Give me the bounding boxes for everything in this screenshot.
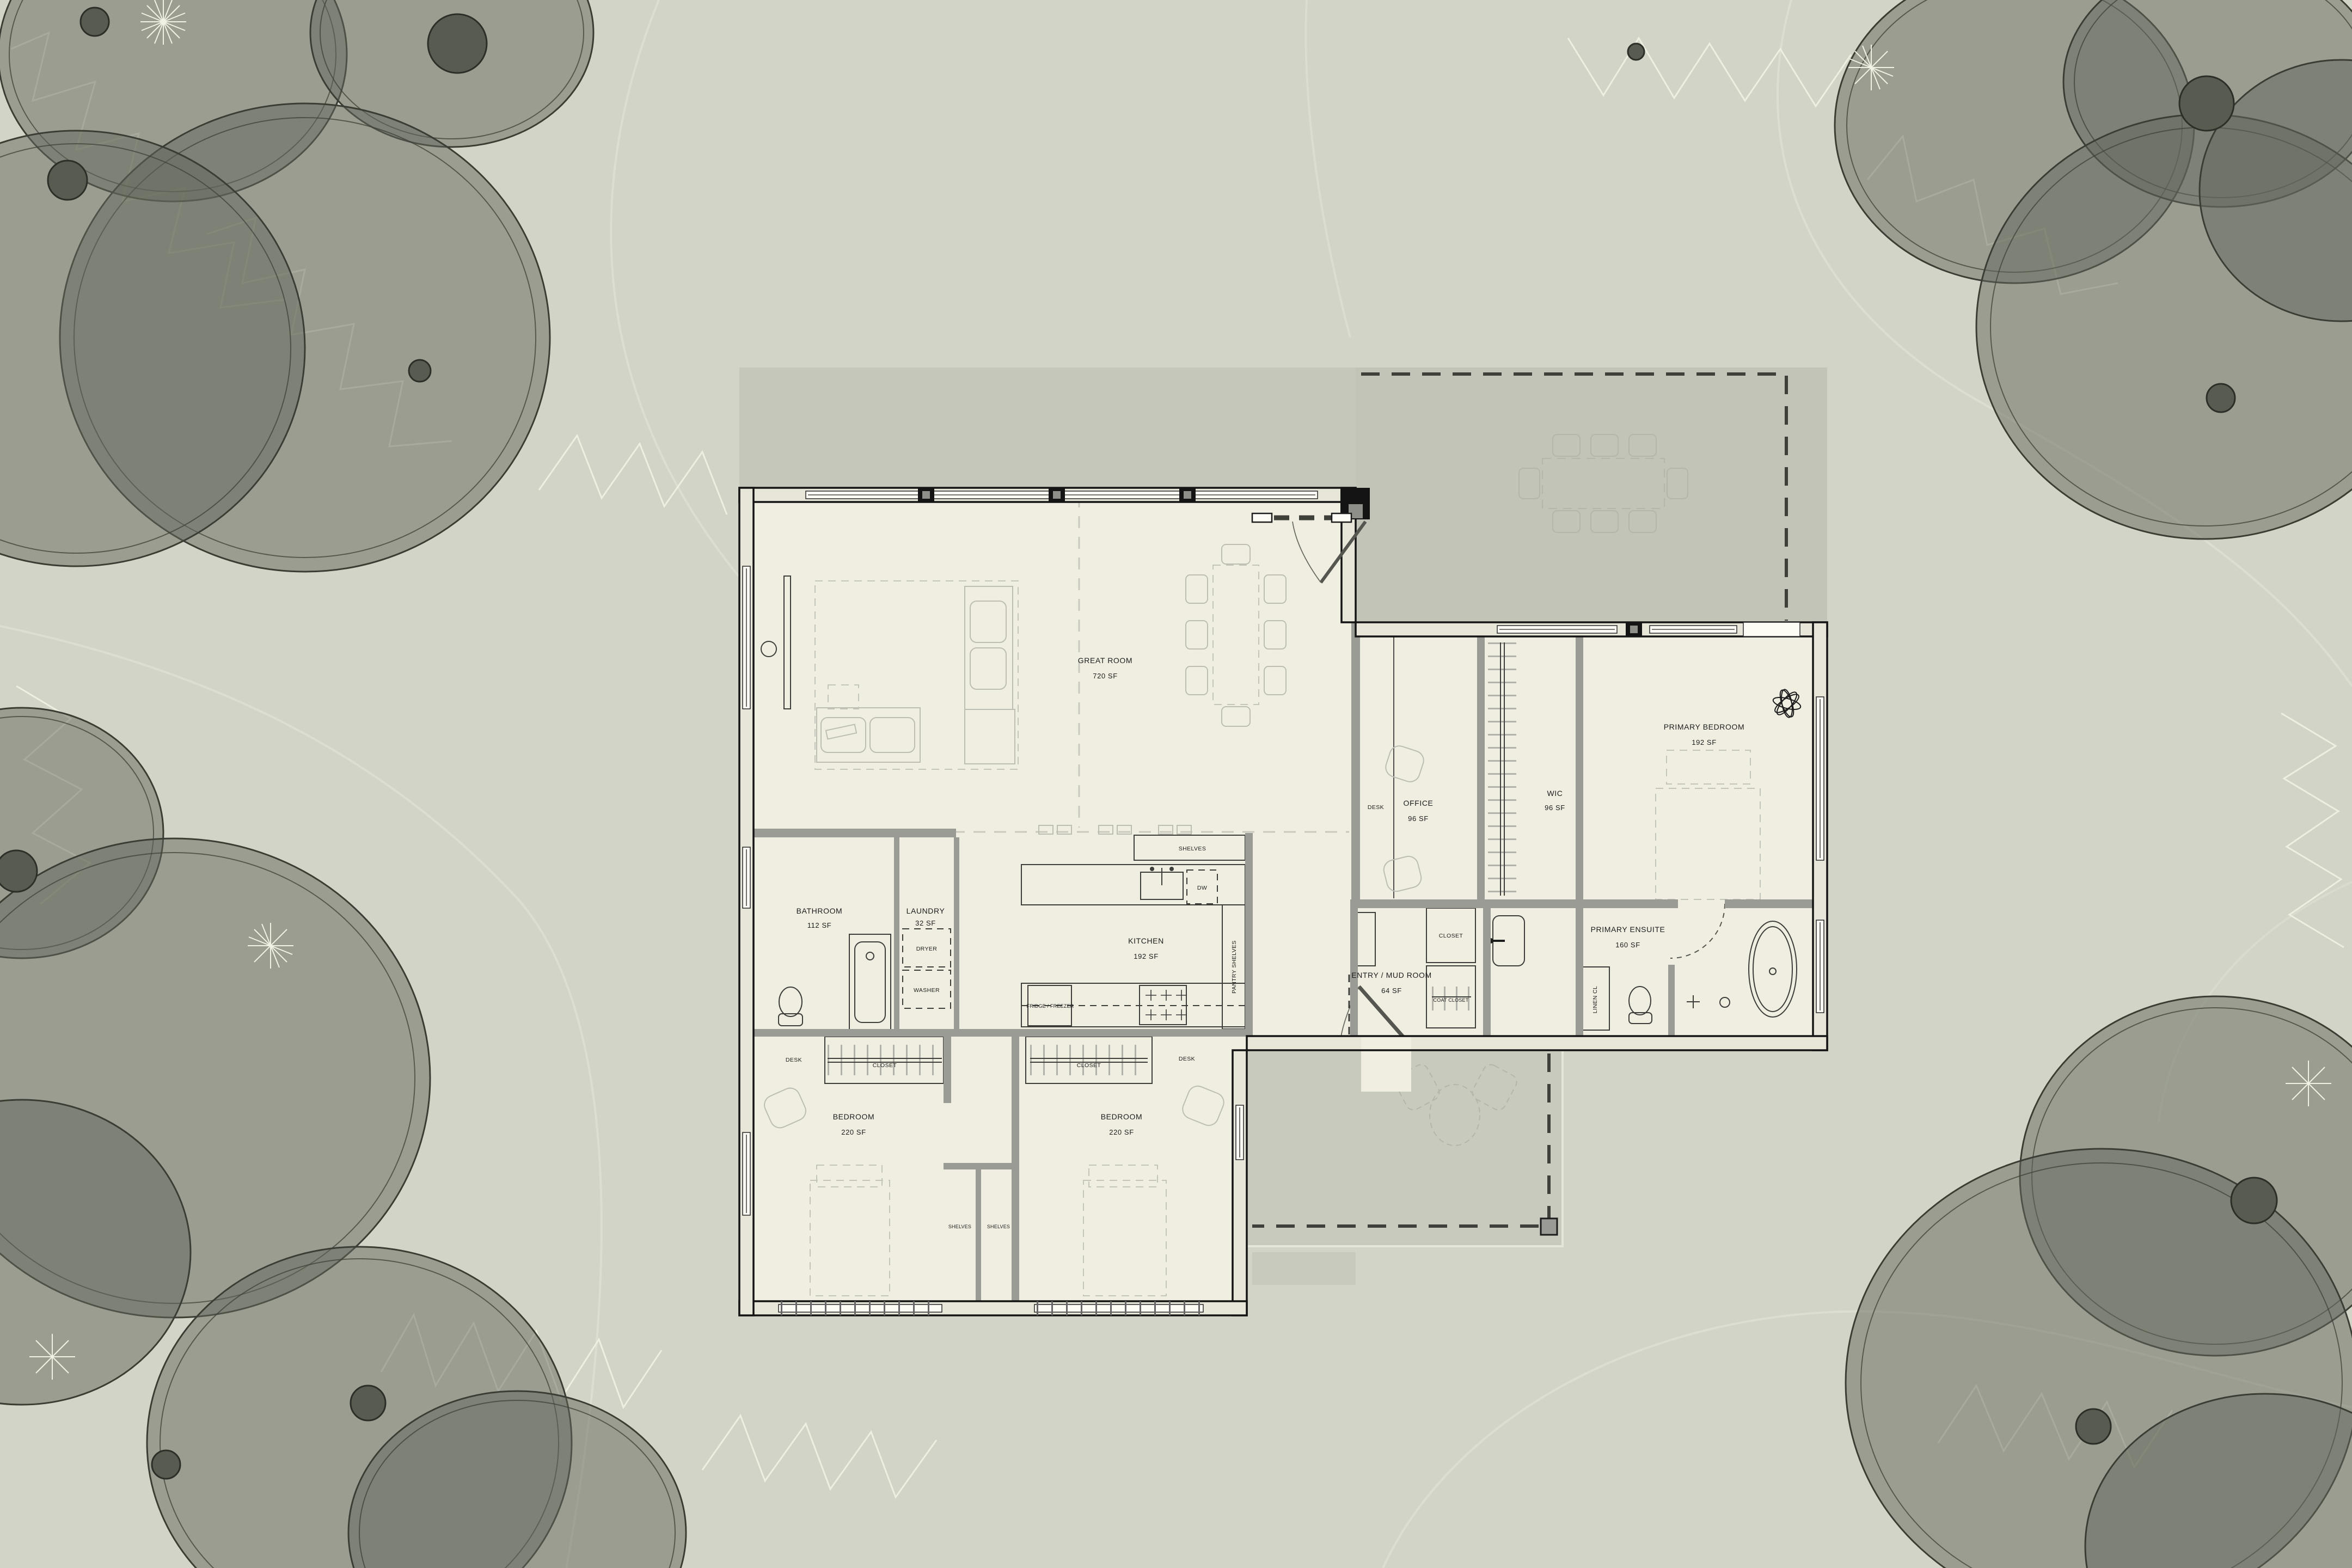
label-primary-ensuite-area: 160 SF (1615, 941, 1640, 949)
patio-post (1541, 1218, 1557, 1235)
label-closet-bedroom1: CLOSET (873, 1062, 897, 1069)
label-primary-bedroom-area: 192 SF (1692, 738, 1717, 746)
tree-trunk (2179, 76, 2234, 131)
tree-trunk (81, 8, 109, 36)
label-shelves-right: SHELVES (987, 1224, 1010, 1229)
label-shelves-left: SHELVES (948, 1224, 971, 1229)
label-office-area: 96 SF (1408, 814, 1429, 823)
label-bathroom-area: 112 SF (807, 921, 832, 929)
label-desk-bedroom1: DESK (786, 1057, 802, 1063)
label-wic: WIC (1547, 789, 1563, 798)
tree-trunk (351, 1386, 385, 1420)
site-plan: GREAT ROOM 720 SF KITCHEN 192 SF BATHROO… (0, 0, 2352, 1568)
label-dishwasher: DW (1197, 885, 1207, 891)
tree-trunk (2207, 384, 2235, 412)
label-laundry: LAUNDRY (906, 906, 945, 915)
label-entry-area: 64 SF (1381, 987, 1402, 995)
label-entry: ENTRY / MUD ROOM (1351, 971, 1432, 979)
label-coat-closet: COAT CLOSET (1434, 997, 1469, 1003)
tree-trunk (2231, 1178, 2277, 1223)
label-island-shelves: SHELVES (1179, 846, 1206, 852)
upper-patio (1356, 367, 1827, 623)
label-bedroom-2: BEDROOM (1101, 1112, 1143, 1121)
tree-trunk (428, 14, 487, 73)
label-bedroom-2-area: 220 SF (1109, 1128, 1134, 1136)
label-bedroom-1-area: 220 SF (841, 1128, 866, 1136)
tree-trunk (1628, 44, 1644, 60)
label-office: OFFICE (1404, 799, 1434, 807)
tree-trunk (152, 1450, 180, 1479)
label-dryer: DRYER (916, 946, 938, 952)
label-bathroom: BATHROOM (797, 906, 843, 915)
label-washer: WASHER (914, 987, 940, 994)
label-kitchen-area: 192 SF (1134, 952, 1159, 960)
tree-trunk (0, 850, 37, 892)
label-entry-closet: CLOSET (1439, 933, 1463, 939)
tree-trunk (2076, 1409, 2111, 1444)
label-linen-closet: LINEN CL (1592, 986, 1598, 1013)
label-kitchen: KITCHEN (1128, 936, 1164, 945)
label-laundry-area: 32 SF (915, 919, 936, 927)
label-closet-bedroom2: CLOSET (1077, 1062, 1101, 1069)
label-desk-bedroom2: DESK (1179, 1056, 1195, 1062)
tree-trunk (409, 360, 431, 382)
label-pantry-shelves: PANTRY SHELVES (1231, 940, 1238, 994)
tree-trunk (48, 161, 87, 200)
walkway (1252, 1252, 1356, 1285)
label-bedroom-1: BEDROOM (833, 1112, 875, 1121)
label-fridge: FRIDGE / FREEZER (1027, 1003, 1074, 1009)
label-primary-ensuite: PRIMARY ENSUITE (1591, 925, 1665, 934)
label-great-room-area: 720 SF (1093, 672, 1118, 680)
label-wic-area: 96 SF (1545, 804, 1565, 812)
site-plan-drawing: GREAT ROOM 720 SF KITCHEN 192 SF BATHROO… (0, 0, 2352, 1568)
label-primary-bedroom: PRIMARY BEDROOM (1664, 722, 1745, 731)
label-office-desk: DESK (1368, 804, 1384, 811)
rear-deck (739, 367, 1356, 492)
label-great-room: GREAT ROOM (1078, 656, 1132, 665)
entry-threshold (1361, 1050, 1411, 1092)
